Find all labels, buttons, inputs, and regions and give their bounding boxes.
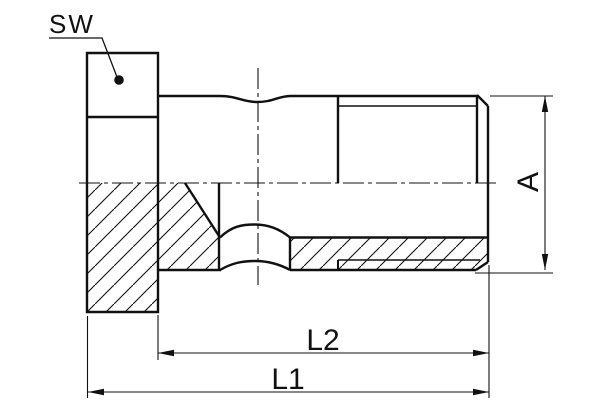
arrow-a-top xyxy=(542,96,548,112)
sw-leader-dot xyxy=(114,75,124,85)
label-length-l1: L1 xyxy=(271,363,304,396)
arrow-a-bottom xyxy=(542,254,548,270)
arrow-l2-right xyxy=(473,350,489,356)
break-lower-arc xyxy=(220,261,290,270)
fitting-section-drawing: SW L2 L1 A xyxy=(0,0,600,400)
label-length-l2: L2 xyxy=(306,324,339,357)
arrow-l1-left xyxy=(88,389,104,395)
shank-top-edge xyxy=(158,96,477,102)
technical-drawing-canvas: SW L2 L1 A xyxy=(0,0,600,400)
arrow-l1-right xyxy=(473,389,489,395)
sw-leader-line xyxy=(49,38,117,77)
hatch-threaded-wall xyxy=(290,238,488,270)
chamfer-top xyxy=(477,95,488,106)
arrow-l2-left xyxy=(158,350,174,356)
break-upper-arc xyxy=(220,225,290,238)
hatch-head-and-shank xyxy=(87,183,219,312)
label-wrench-size: SW xyxy=(49,9,95,39)
label-diameter-a: A xyxy=(512,172,545,192)
section-hatching xyxy=(87,183,488,312)
